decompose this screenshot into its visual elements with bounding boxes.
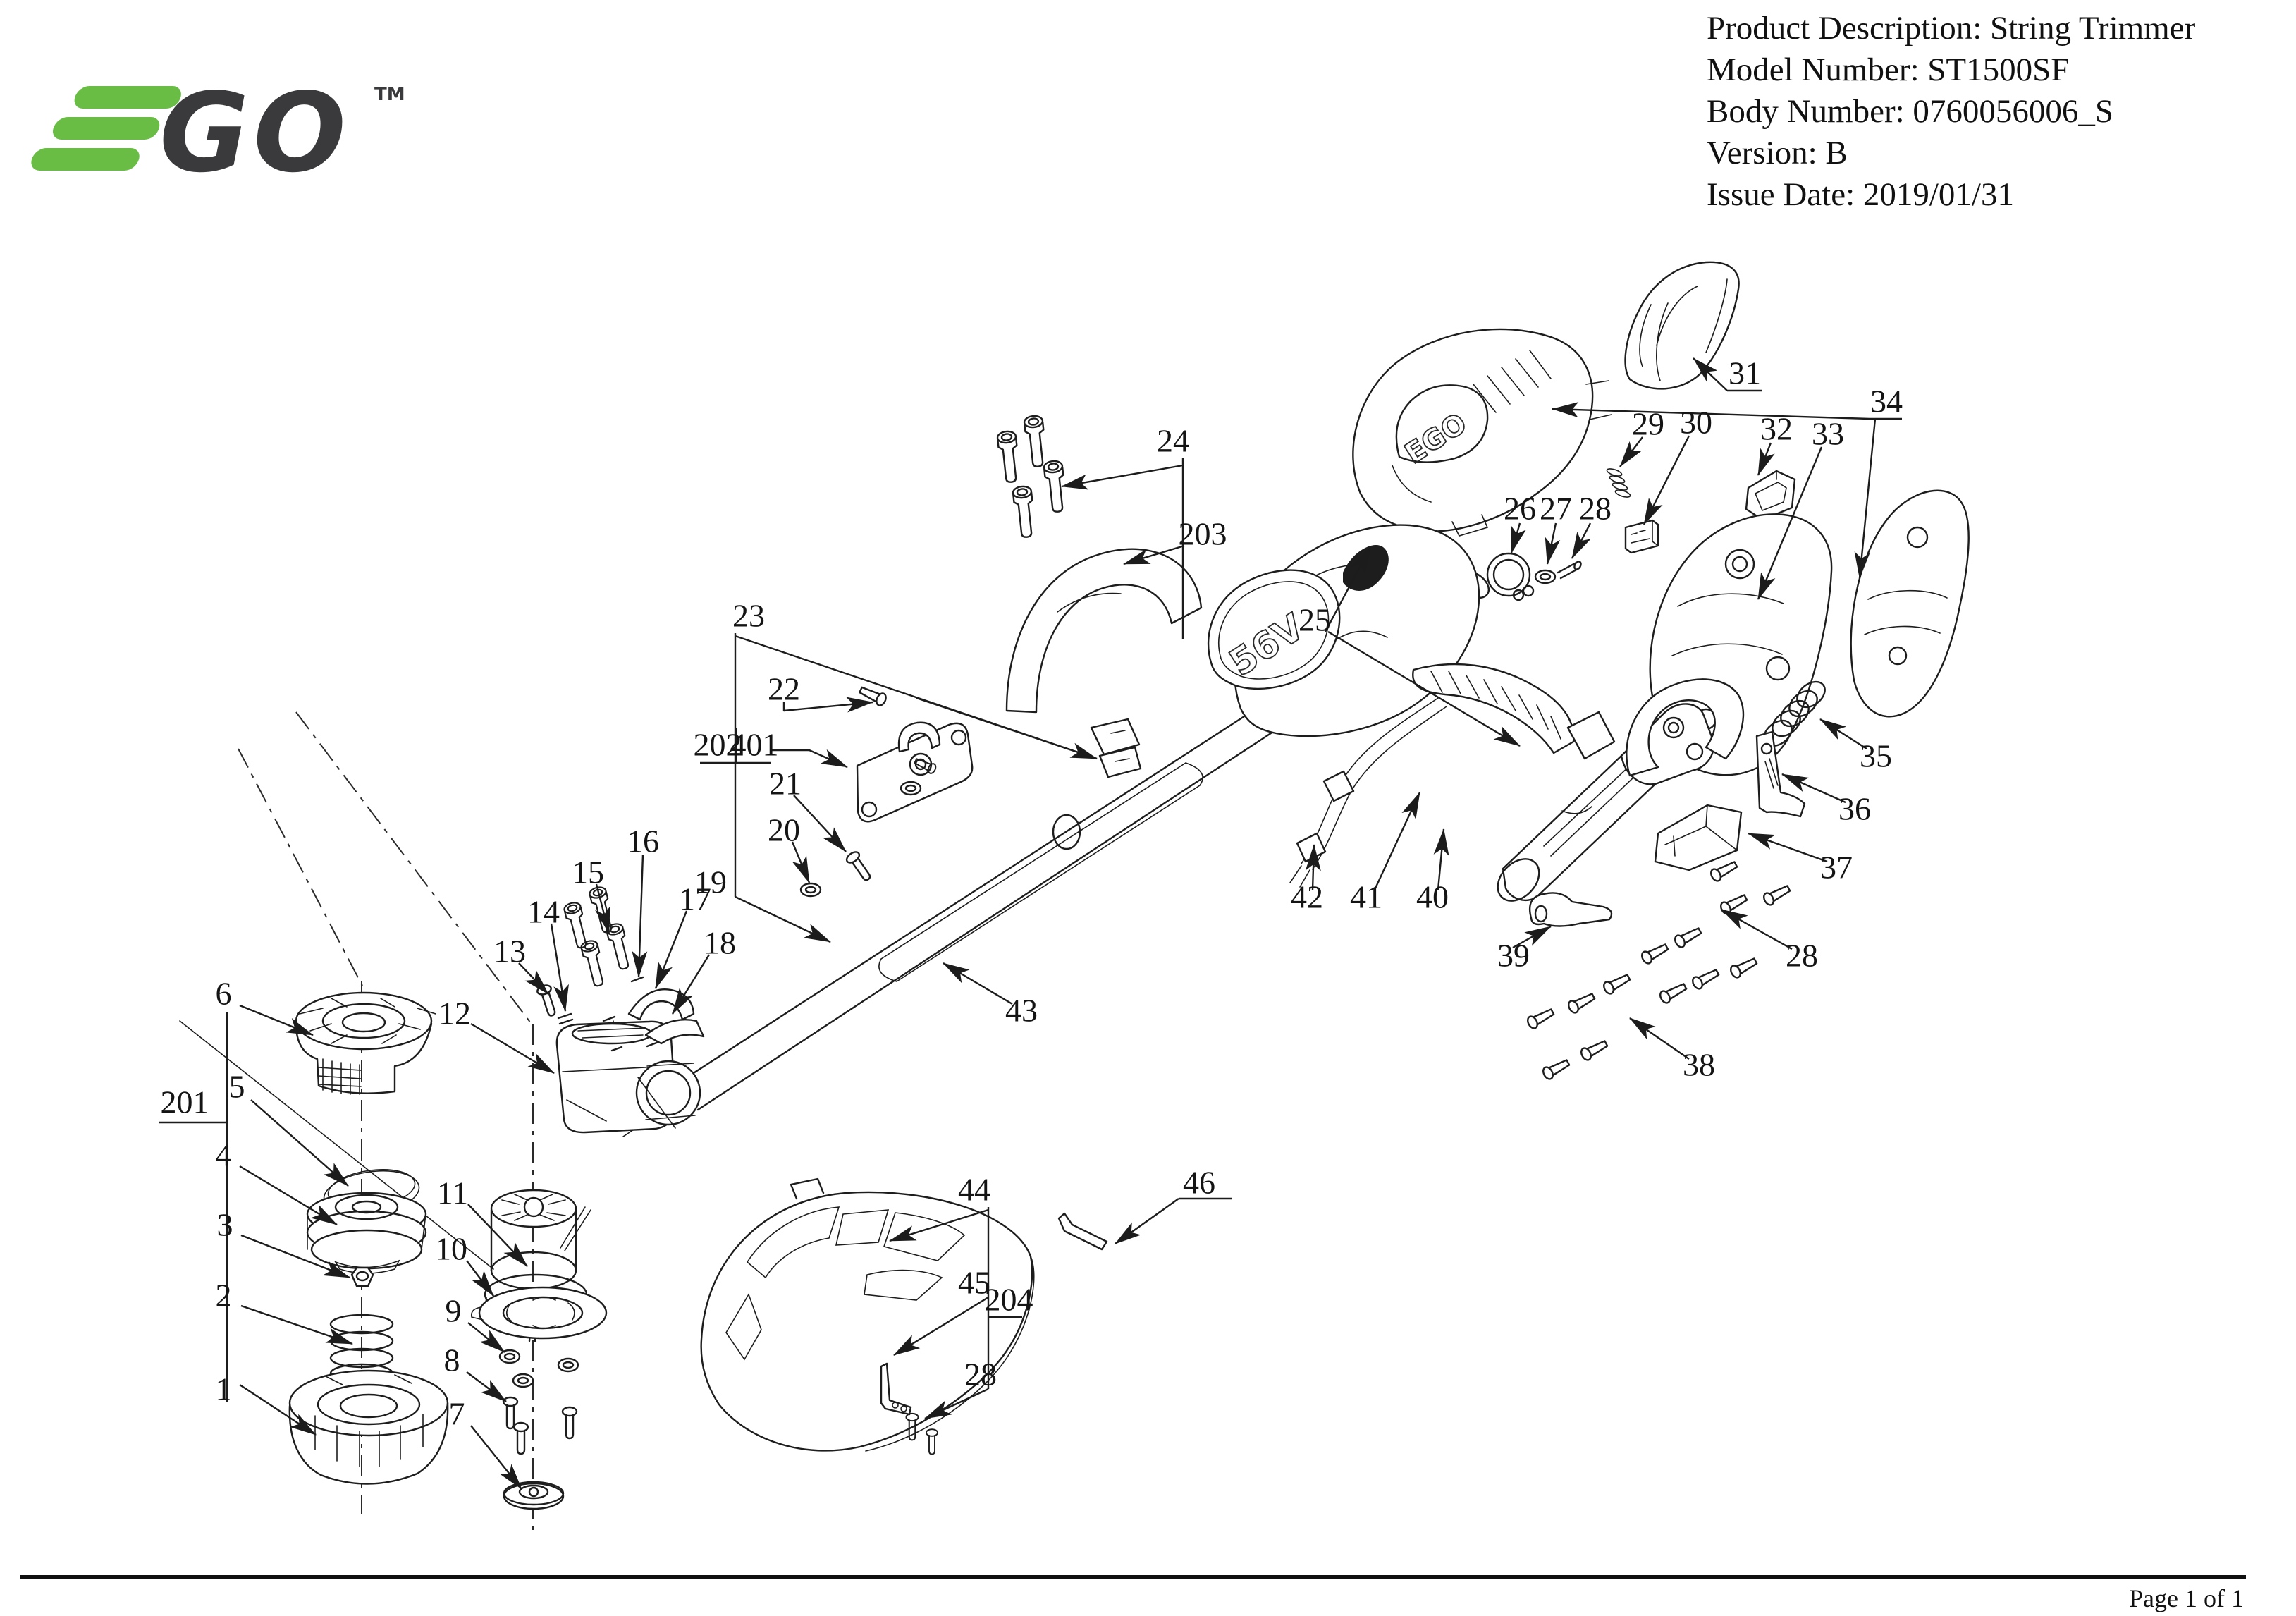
- callout-22: 22: [768, 671, 800, 707]
- callout-7: 7: [449, 1396, 465, 1432]
- callout-36: 36: [1838, 791, 1871, 827]
- callout-39: 39: [1497, 938, 1530, 974]
- callout-44: 44: [958, 1172, 990, 1208]
- callout-24: 24: [1157, 423, 1189, 459]
- part-spool: [307, 1193, 426, 1273]
- part-battery-cover-31: [1626, 262, 1739, 389]
- part-screws-24: [997, 415, 1067, 538]
- part-washer-27: [1535, 570, 1555, 583]
- callout-16: 16: [627, 824, 659, 859]
- part-spool-cap: [296, 993, 436, 1094]
- callout-1: 1: [216, 1371, 232, 1407]
- part-dust-cap: [504, 1482, 563, 1509]
- callout-9: 9: [446, 1293, 462, 1329]
- footer-rule: [20, 1575, 2246, 1579]
- callout-204: 204: [985, 1282, 1033, 1318]
- part-handle: [1007, 549, 1201, 777]
- callout-28: 28: [1786, 938, 1818, 974]
- callout-203: 203: [1179, 516, 1227, 552]
- callout-26: 26: [1504, 491, 1536, 527]
- callout-10: 10: [435, 1231, 467, 1267]
- part-pin-28: [1558, 561, 1582, 578]
- callout-19: 19: [694, 864, 727, 900]
- part-motor-housing: [557, 1021, 700, 1132]
- part-washers: [500, 1350, 578, 1387]
- callout-6: 6: [216, 976, 232, 1012]
- part-lever-39: [1530, 893, 1612, 926]
- part-hex-key: [1059, 1213, 1107, 1249]
- callout-29: 29: [1632, 406, 1664, 442]
- part-screws-38: [1525, 859, 1791, 1081]
- callout-43: 43: [1005, 993, 1038, 1029]
- callout-23: 23: [732, 598, 765, 634]
- part-screws-8: [503, 1397, 577, 1454]
- callout-2: 2: [216, 1278, 232, 1314]
- callout-4: 4: [216, 1137, 232, 1173]
- callout-201: 201: [161, 1084, 209, 1120]
- callout-21: 21: [769, 766, 802, 802]
- part-nut: [352, 1268, 373, 1286]
- callout-25: 25: [1299, 602, 1331, 638]
- callout-34: 34: [1870, 384, 1903, 420]
- part-bracket-32: [1746, 471, 1795, 520]
- callout-37: 37: [1820, 850, 1853, 886]
- callout-28: 28: [1579, 491, 1612, 527]
- callout-13: 13: [493, 934, 526, 969]
- callout-40: 40: [1416, 879, 1449, 915]
- callout-11: 11: [437, 1175, 468, 1211]
- callout-27: 27: [1540, 491, 1572, 527]
- callout-31: 31: [1729, 355, 1761, 391]
- callout-8: 8: [444, 1342, 460, 1378]
- part-right-housing-b: [1851, 491, 1969, 717]
- footer-page-label: Page 1 of 1: [2129, 1584, 2244, 1613]
- callout-28: 28: [964, 1357, 997, 1392]
- callout-18: 18: [704, 925, 736, 961]
- callout-3: 3: [217, 1207, 233, 1243]
- callout-33: 33: [1812, 416, 1844, 452]
- callout-35: 35: [1860, 738, 1892, 774]
- part-snap-ring: [1487, 553, 1533, 600]
- callout-42: 42: [1291, 879, 1323, 915]
- part-upper-housing: [1353, 329, 1612, 536]
- callout-401: 401: [730, 727, 779, 763]
- exploded-parts-diagram: EGO56V 123452016789101112131415161718192…: [0, 0, 2296, 1616]
- callout-46: 46: [1183, 1165, 1215, 1201]
- part-clamp-bracket: [801, 684, 972, 896]
- callout-15: 15: [572, 855, 604, 890]
- part-rotor-plate: [472, 1287, 606, 1338]
- callout-5: 5: [229, 1069, 245, 1105]
- callout-30: 30: [1680, 405, 1712, 441]
- callout-20: 20: [768, 812, 800, 848]
- callout-32: 32: [1760, 411, 1793, 447]
- callout-38: 38: [1683, 1047, 1715, 1083]
- part-spool-housing: [290, 1371, 448, 1484]
- parts-diagram-page: GO TM Product Description: String Trimme…: [0, 0, 2296, 1616]
- part-tray-37: [1655, 805, 1741, 870]
- part-connector-30: [1626, 520, 1658, 553]
- callout-12: 12: [438, 996, 471, 1032]
- callout-14: 14: [527, 894, 560, 930]
- callout-41: 41: [1350, 879, 1382, 915]
